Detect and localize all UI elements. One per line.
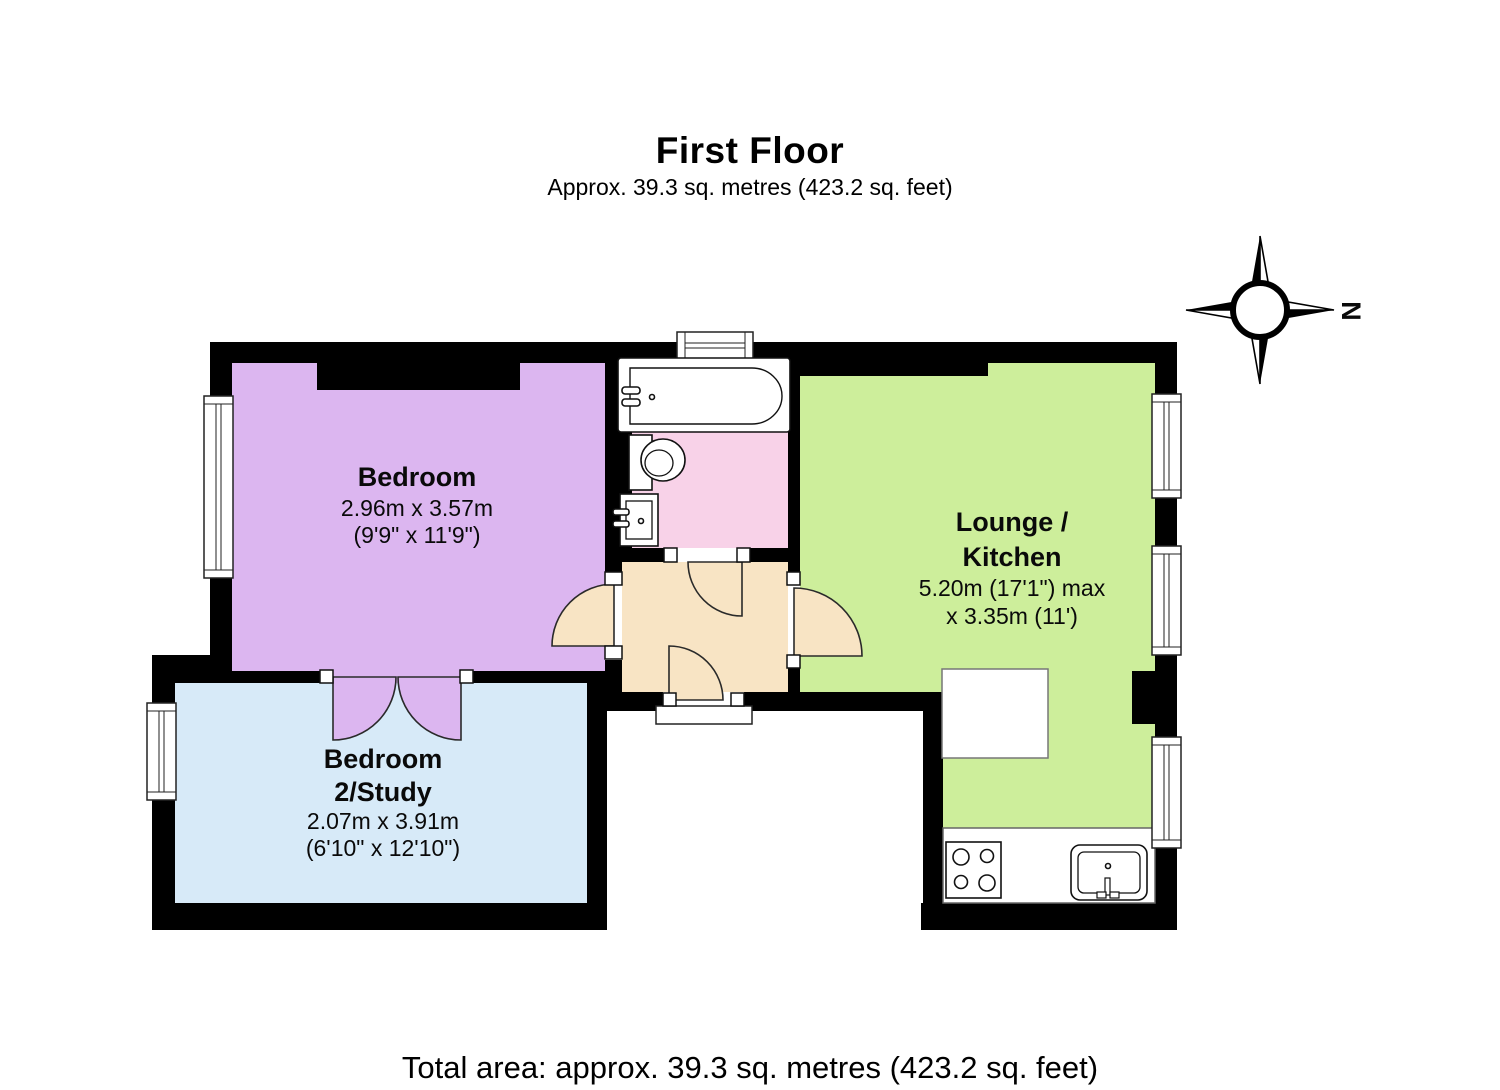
bedroom-dims-metric: 2.96m x 3.57m [341,495,493,521]
bedroom2-dims-metric: 2.07m x 3.91m [307,808,459,834]
bedroom2-label-line2: 2/Study [334,777,432,807]
bedroom-dims-imperial: (9'9" x 11'9") [354,522,481,548]
bedroom-label: Bedroom [358,462,477,492]
lounge-dims-metric: 5.20m (17'1") max [919,575,1106,601]
north-label: N [1336,301,1366,321]
lounge-dims-imperial: x 3.35m (11') [946,603,1078,629]
hob-icon [946,842,1001,898]
floorplan-page: First Floor Approx. 39.3 sq. metres (423… [0,0,1500,1090]
window-bedroom-left [204,396,233,578]
compass-rose-icon: N [1186,236,1366,384]
kitchen-sink-icon [1071,845,1147,900]
entrance-threshold [656,706,752,724]
floorplan-svg: N Bedroom 2.96m x 3.57m (9'9" x 11'9") B… [0,0,1500,1090]
bathtub-icon [618,358,790,432]
bedroom2-label-line1: Bedroom [324,744,443,774]
worktop [942,669,1048,758]
window-bathroom-top [677,332,753,361]
lounge-label-line1: Lounge / [956,507,1069,537]
window-lounge-3 [1152,737,1181,848]
window-lounge-2 [1152,546,1181,655]
window-lounge-1 [1152,394,1181,498]
bathroom-sink-icon [613,494,658,546]
bedroom2-dims-imperial: (6'10" x 12'10") [306,835,460,861]
lounge-label-line2: Kitchen [962,542,1061,572]
window-study-left [147,703,176,800]
